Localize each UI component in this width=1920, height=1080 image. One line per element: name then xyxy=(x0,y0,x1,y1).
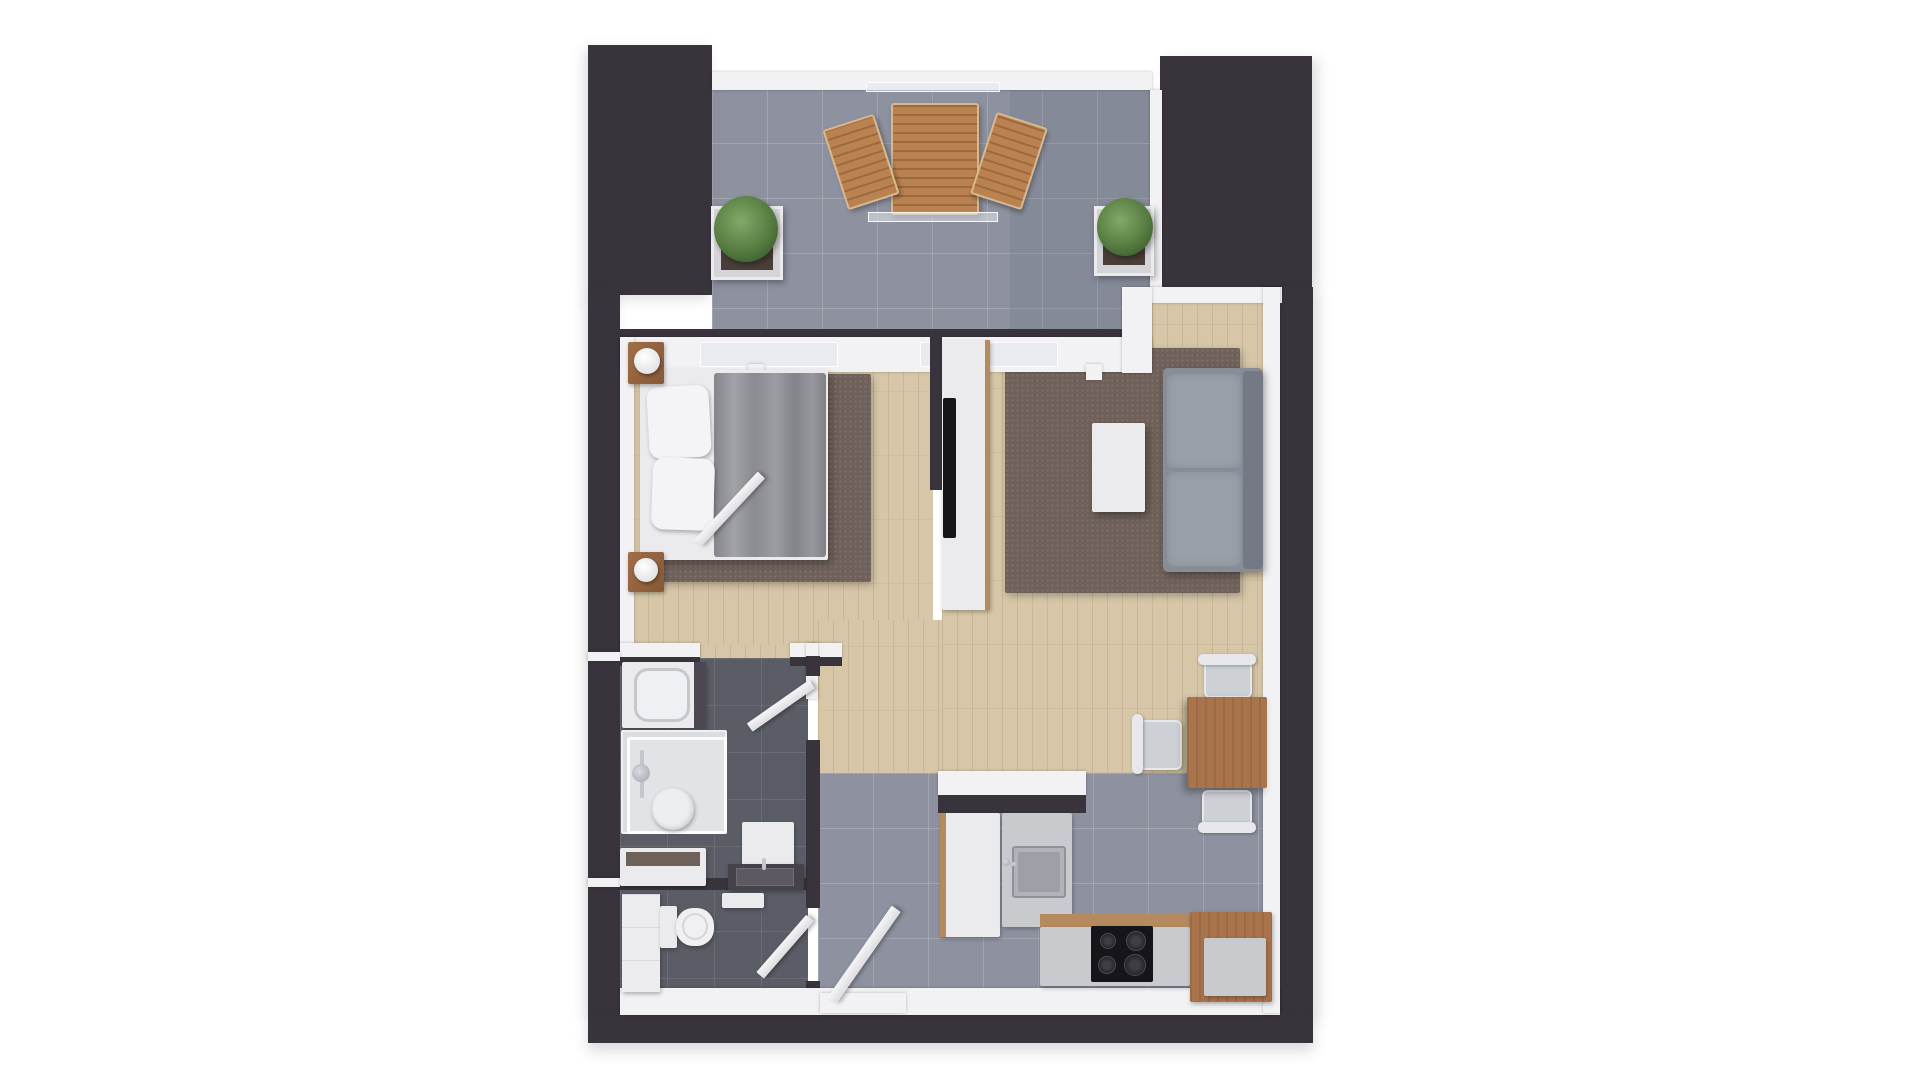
bath-wall-segment-top xyxy=(806,656,820,676)
balcony-step-wall xyxy=(1122,287,1152,373)
sofa-back xyxy=(1243,371,1263,569)
kitchen-island-top xyxy=(1204,938,1266,996)
balcony-table xyxy=(891,103,979,215)
balcony-glass-screen-top xyxy=(866,82,1000,92)
fridge-edge xyxy=(940,813,946,937)
dining-chair-top-back xyxy=(1198,654,1256,665)
bed-duvet xyxy=(714,373,826,557)
wall-bottom-outer xyxy=(588,1013,1313,1043)
toilet-seat-ring xyxy=(682,913,708,940)
dining-table xyxy=(1187,697,1267,788)
vanity-faucet xyxy=(762,858,766,870)
shower-head xyxy=(632,764,650,782)
tv-cabinet-edge xyxy=(985,340,990,610)
sofa-cushion-2 xyxy=(1167,472,1241,566)
toilet-tank xyxy=(660,906,677,948)
wall-right-outer xyxy=(1280,287,1313,1015)
shower-drain xyxy=(652,788,694,830)
dining-chair-top-seat xyxy=(1204,660,1252,698)
left-wall-junction-2 xyxy=(588,878,620,887)
dining-chair-bottom-back xyxy=(1198,822,1256,833)
bottom-inner-wall xyxy=(620,988,1280,1015)
bath-wall-segment-mid xyxy=(806,740,820,908)
fridge xyxy=(940,813,1000,937)
dining-chair-left-seat xyxy=(1140,720,1182,770)
kitchen-faucet-base xyxy=(1002,858,1010,866)
wc-shelf xyxy=(722,893,764,908)
dining-chair-bottom-seat xyxy=(1202,790,1252,826)
bed-pillow-2 xyxy=(651,457,715,531)
washing-machine-drum xyxy=(634,668,690,722)
balcony-glass-screen-bottom xyxy=(868,212,998,222)
dining-chair-left-back xyxy=(1132,714,1143,774)
sofa-cushion-1 xyxy=(1167,374,1241,468)
wc-cabinet xyxy=(622,894,660,992)
floor-plan-stage xyxy=(0,0,1920,1080)
left-wall-junction-1 xyxy=(588,652,620,661)
wall-block-top-left xyxy=(588,45,712,295)
plant-right xyxy=(1097,198,1153,256)
balcony-door-glass-left xyxy=(700,342,838,367)
wall-block-top-right xyxy=(1160,56,1312,287)
coffee-table xyxy=(1092,423,1145,512)
bed-pillow-1 xyxy=(646,384,712,459)
vanity-basin xyxy=(736,868,794,886)
bath-shelf-inner xyxy=(626,852,700,866)
cooktop-burner-3 xyxy=(1098,956,1116,974)
kitchen-divider-counter xyxy=(938,771,1086,795)
cooktop-burner-2 xyxy=(1126,931,1146,951)
washing-machine-panel xyxy=(694,662,706,728)
cooktop-burner-4 xyxy=(1124,954,1146,976)
door-tab-3 xyxy=(1086,364,1102,380)
tv xyxy=(943,398,956,538)
kitchen-divider-core xyxy=(938,795,1086,813)
right-inner-wall xyxy=(1263,287,1280,1013)
vanity-mirror xyxy=(742,822,794,868)
lamp-head xyxy=(634,348,660,374)
bedroom-bottom-wall-left xyxy=(620,643,700,658)
kitchen-sink-basin xyxy=(1018,852,1060,892)
tv-partition-wall xyxy=(930,333,942,490)
plant-left xyxy=(714,196,778,262)
cooktop-burner-1 xyxy=(1100,933,1116,949)
lamp-foot xyxy=(634,558,658,582)
